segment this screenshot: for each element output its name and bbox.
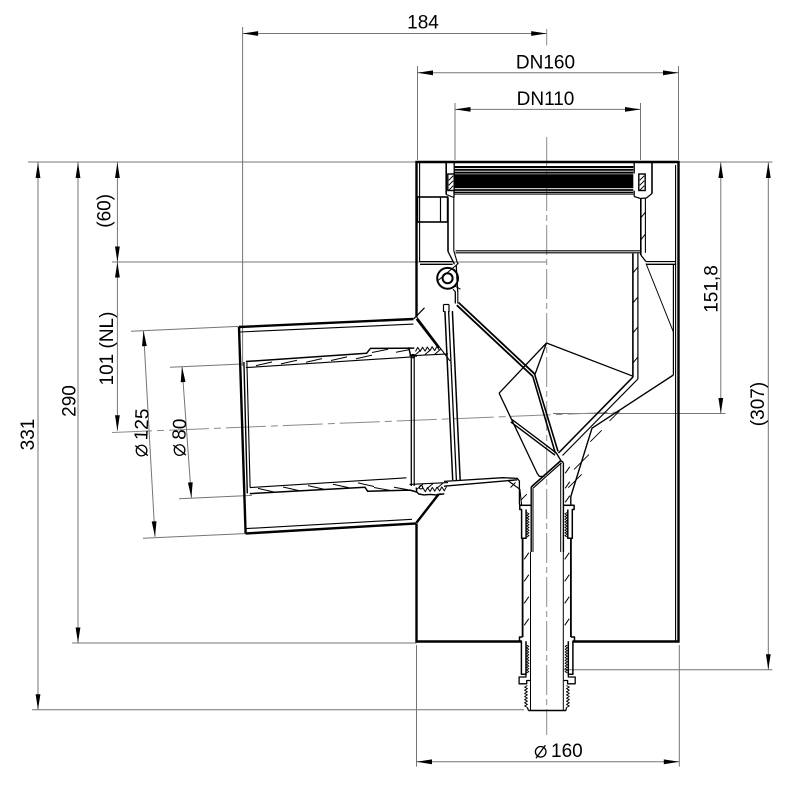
- svg-text:125: 125: [131, 408, 153, 441]
- svg-text:160: 160: [551, 741, 583, 762]
- svg-text:DN160: DN160: [516, 52, 575, 73]
- svg-text:184: 184: [407, 13, 439, 34]
- svg-text:331: 331: [18, 419, 39, 451]
- svg-text:151,8: 151,8: [701, 265, 722, 313]
- svg-text:(307): (307): [748, 382, 769, 426]
- svg-text:101 (NL): 101 (NL): [97, 312, 118, 386]
- svg-text:290: 290: [60, 385, 81, 417]
- svg-text:80: 80: [169, 418, 191, 440]
- svg-text:DN110: DN110: [517, 89, 575, 110]
- svg-text:(60): (60): [94, 194, 115, 228]
